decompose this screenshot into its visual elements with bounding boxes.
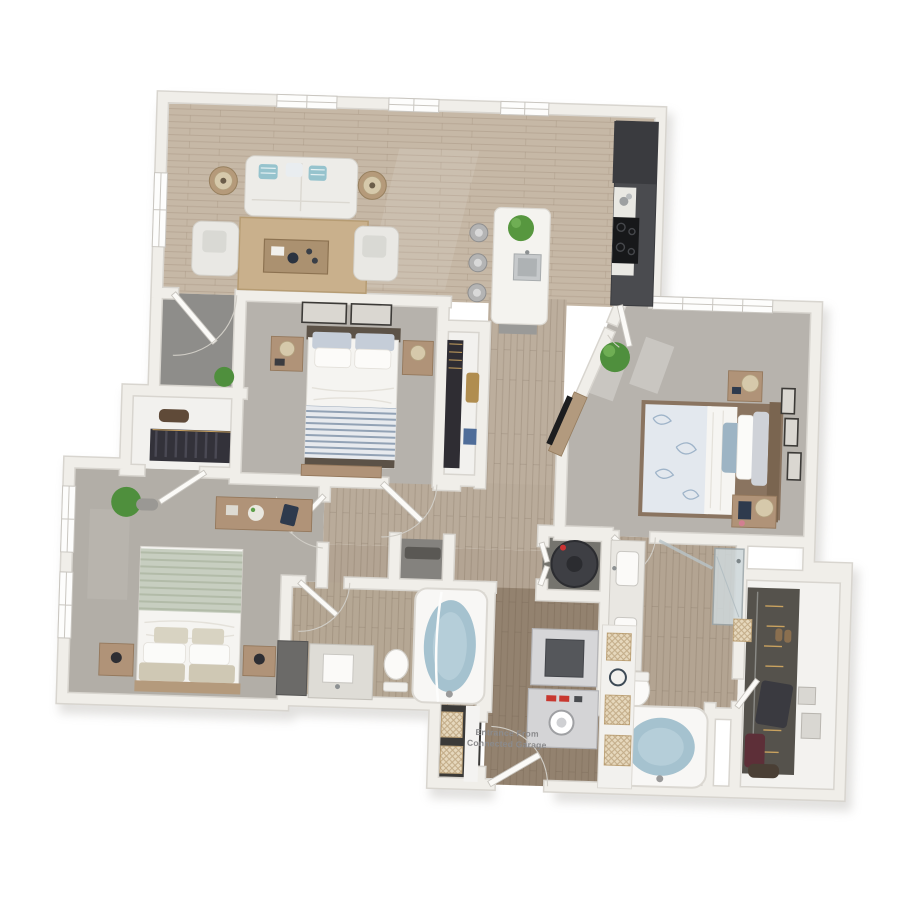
laundry-basket-2-weave [604,695,630,725]
master-sink-1 [616,551,639,586]
master-frame-1 [781,388,795,413]
hall-bath-toilet-tank [383,682,407,692]
master-pillow-pattern [751,412,769,486]
bedroom3-window-2 [58,572,73,638]
bedroom2-lamp-right [410,345,425,360]
walkin-basket-weave [733,619,752,642]
bedroom3-nightstand-left [99,643,134,676]
bedroom2-frame-1 [302,302,347,323]
master-frame-2 [784,419,798,446]
bedroom3-pillow-pattern-2 [192,628,224,645]
bedroom3-planter [136,498,158,511]
master-lamp-bottom [755,499,774,518]
bedroom2-pillow-pattern-1 [312,332,352,350]
master-lamp-top [741,375,759,393]
laundry-basket-3-weave [604,735,631,766]
hall-bath-toilet [383,649,408,692]
walkin-shoe-1 [775,628,782,641]
armchair-right [353,226,399,281]
hall-bath-toilet-bowl [384,649,409,680]
laundry-closet-basket-1-weave [441,712,463,738]
bar-stools [468,224,488,303]
bedroom2-pillow-white-1 [315,348,352,368]
armchair-right-pillow [362,235,387,258]
living-window-top-1 [277,94,337,109]
hall-bath-tub [412,588,488,704]
master-nightstand-bottom [732,495,777,528]
bedroom3-closet-clothes [150,429,231,463]
coffee-table [263,239,328,274]
laundry-shelving [597,625,636,789]
hall-bath-cabinet [276,641,308,696]
laundry-grain [484,587,614,788]
washer-button-dark [574,696,582,702]
bedroom2-nightstand-left [270,336,303,371]
bedroom2-lamp-left [279,341,294,356]
sunlight-bedroom3 [87,509,130,600]
bedroom3-pillow-white-2 [189,644,230,665]
washer-button-red-1 [546,695,556,701]
bedroom2-closet-basket [466,372,480,402]
sofa-pillow-teal-left [258,164,277,180]
floor-plan-svg: Entrance From Connected Garage [0,0,900,900]
bedroom2-nightstand-right [402,340,433,375]
side-table-right [358,171,387,200]
bedroom3-window-1 [61,486,76,552]
bedroom2-phone [275,358,285,365]
laundry-basket-1-weave [606,633,631,661]
bedroom2-bed [302,325,400,468]
entrance-label-line1: Entrance From [475,727,539,739]
master-nightstand-top [728,371,763,402]
bedroom2-striped-blanket [305,405,397,460]
walkin-box-1 [798,687,816,705]
master-nightstand-book [732,387,741,394]
bedroom2-closet-folded-linens [463,428,476,444]
living-window-left [152,173,167,247]
sofa-pillow-teal-right [308,165,326,181]
living-window-top-2 [389,98,439,113]
bedroom3-pillow-bottom-2 [189,664,236,683]
bedroom3-dresser [215,497,312,532]
walkin-shoe-2 [784,630,791,643]
washer-button-red-2 [559,696,569,702]
side-table-left [209,166,238,195]
walkin-box-2 [801,713,821,739]
walkin-garment-burgundy [744,733,765,768]
bedroom3-sage-blanket [139,548,243,613]
sofa [244,155,358,218]
walkin-duffel-bag [748,764,779,779]
hall-bath-sink [323,654,354,683]
dryer-door [545,639,584,677]
master-frame-3 [787,453,801,480]
bedroom2-pillow-pattern-2 [355,333,395,351]
hall-bath-vanity [308,644,374,700]
bedroom3-nightstand-right [243,646,276,677]
bedroom3-pillow-bottom-1 [139,662,186,681]
bedroom2-bench [301,464,381,478]
sofa-pillow-white [286,163,303,178]
kitchen-window [501,101,549,116]
dryer [531,629,599,687]
bedroom3-bed [134,546,245,694]
island-sink-basin [517,258,537,277]
bedroom3-dresser-decor [226,505,238,515]
hall-closet-shelf [405,547,441,560]
floor-plan: Entrance From Connected Garage [53,88,865,804]
bedroom3-pillow-pattern-1 [154,627,188,644]
bedroom3-closet-duffel [159,409,189,423]
cooktop [612,217,639,264]
armchair-left-pillow [202,230,227,253]
master-tablet [738,501,752,519]
kitchen-island [491,207,551,335]
coffee-table-book [271,246,284,255]
laundry-closet-basket-2-weave [440,746,463,774]
refrigerator [612,121,658,184]
master-duvet-floral [642,404,711,514]
armchair-left [191,221,239,276]
bedroom3-pillow-white-1 [143,642,186,663]
bedroom2-frame-2 [351,304,392,325]
floor-plan-stage: Entrance From Connected Garage [0,0,900,900]
bedroom2-pillow-white-2 [355,349,392,369]
